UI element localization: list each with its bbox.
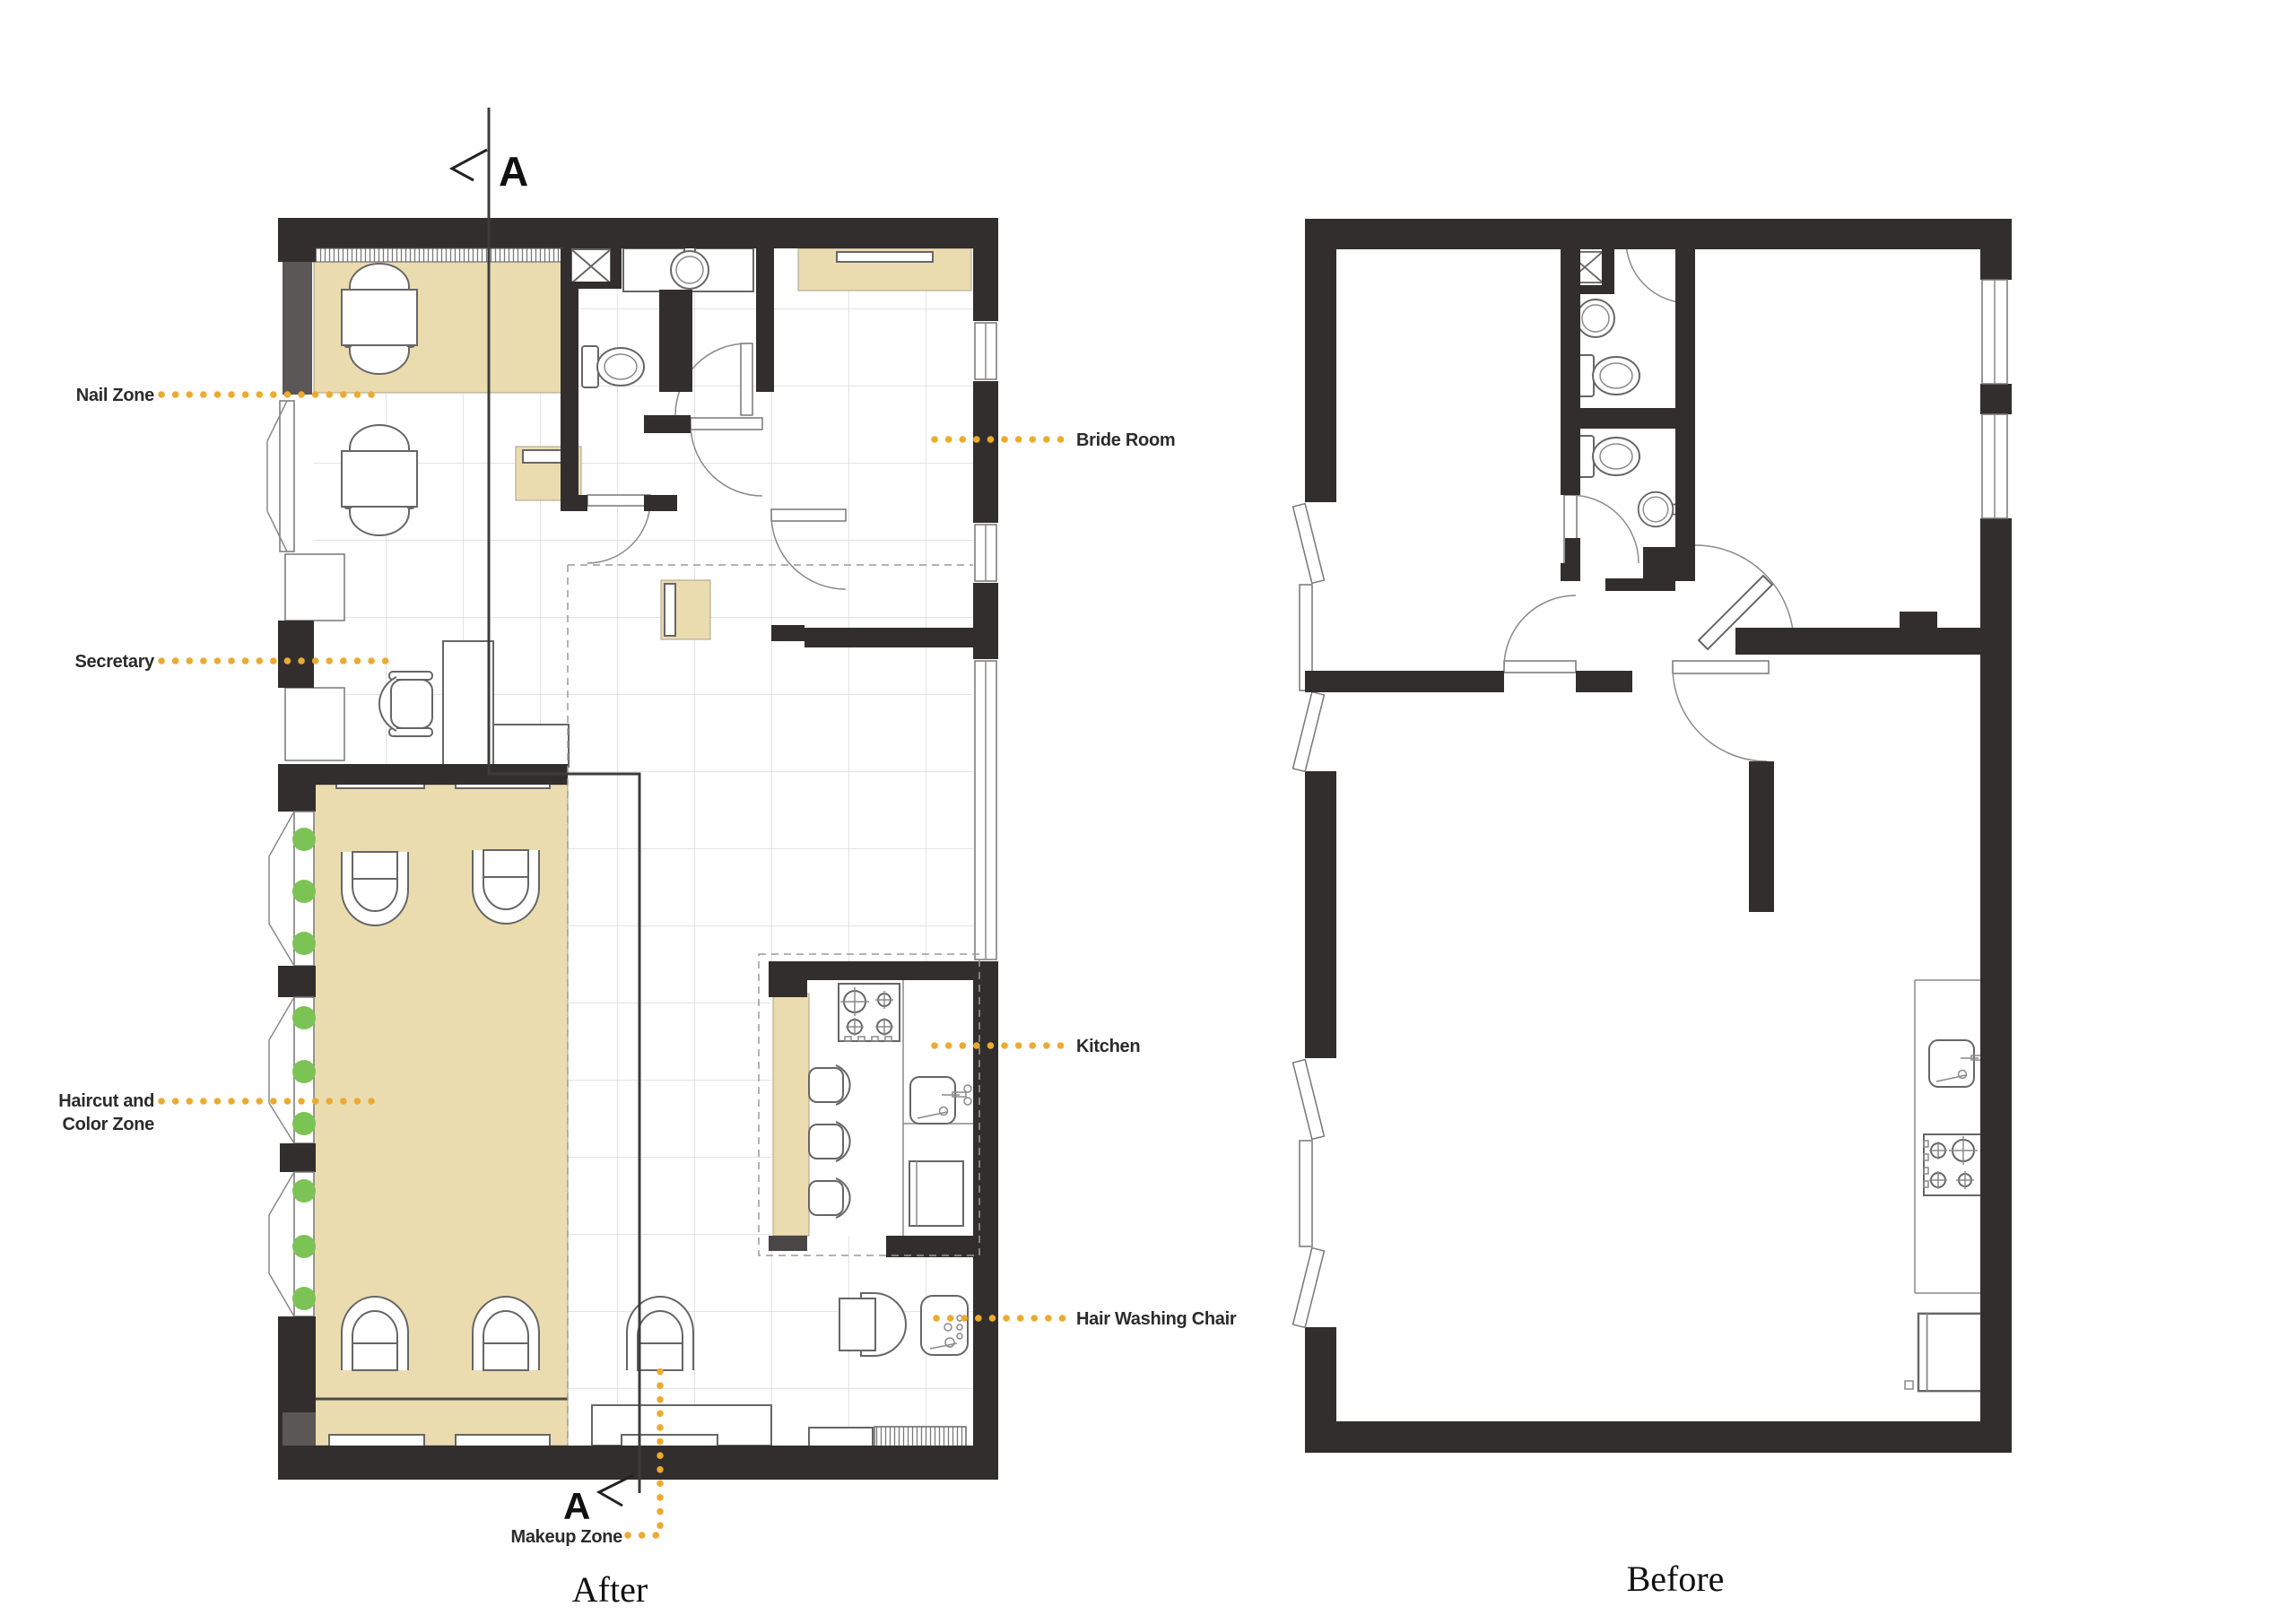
hair-washing-chair — [839, 1293, 906, 1356]
plant-icon — [292, 932, 316, 955]
label-hair-washing-chair: Hair Washing Chair — [1076, 1309, 1237, 1329]
toilet-icon — [1578, 436, 1639, 477]
bench-hatched — [874, 1427, 966, 1448]
plant-icon — [292, 828, 316, 851]
plant-icon — [292, 880, 316, 903]
stove-icon — [839, 984, 900, 1041]
waiting-benches — [809, 1427, 966, 1448]
label-bride-room: Bride Room — [1076, 430, 1175, 450]
bar-chair — [809, 1178, 850, 1218]
floor-plan-canvas: A A Nail Zone Secretary Haircut and Colo… — [0, 0, 2296, 1624]
section-arrow-top — [452, 150, 487, 180]
bar-chair — [809, 1065, 850, 1105]
label-makeup-zone: Makeup Zone — [511, 1527, 623, 1547]
window-sill-hatch — [305, 248, 563, 262]
label-nail-zone: Nail Zone — [76, 386, 154, 405]
after-plan: A A Nail Zone Secretary Haircut and Colo… — [58, 108, 1237, 1610]
after-kitchen — [771, 980, 973, 1236]
nail-table — [342, 451, 417, 507]
plant-icon — [292, 1060, 316, 1083]
styling-chair — [473, 850, 539, 924]
wall-cabinet — [285, 554, 344, 621]
section-arrow-bottom — [599, 1475, 633, 1506]
door-leaf — [691, 418, 762, 430]
bay-window-outline — [269, 812, 294, 1316]
fridge-icon — [909, 1161, 963, 1226]
before-caption: Before — [1627, 1559, 1725, 1599]
plant-icon — [292, 1179, 316, 1203]
bar-chair — [809, 1122, 850, 1161]
wall-cabinet — [285, 688, 344, 760]
door-leaf — [771, 509, 846, 521]
bay-window — [1293, 504, 1325, 772]
mirror-counter — [329, 1435, 424, 1447]
before-plan: Before — [1293, 219, 2012, 1599]
toilet-icon — [582, 346, 644, 387]
bench — [809, 1428, 873, 1446]
kitchen-bar-counter — [773, 994, 809, 1236]
mirror-counter — [456, 1435, 550, 1447]
section-marker-top: A — [499, 148, 528, 195]
door-leaf — [1504, 661, 1576, 673]
door-leaf — [1673, 661, 1769, 673]
wc-door-leaf — [587, 495, 650, 506]
section-marker-bottom: A — [563, 1485, 590, 1527]
plant-icon — [292, 1287, 316, 1310]
after-caption: After — [572, 1569, 648, 1610]
plant-icon — [292, 1006, 316, 1029]
plant-icon — [292, 1235, 316, 1258]
bay-window — [1293, 1060, 1325, 1328]
styling-chair — [473, 1297, 539, 1370]
nail-table — [342, 290, 417, 345]
makeup-chair — [627, 1297, 693, 1370]
shaft-icon — [571, 249, 611, 283]
secretary-desk-return — [493, 725, 569, 767]
label-haircut-line1: Haircut and — [58, 1091, 154, 1111]
styling-chair — [342, 852, 408, 925]
page: A A Nail Zone Secretary Haircut and Colo… — [0, 0, 2296, 1624]
plant-icon — [292, 1112, 316, 1135]
label-haircut-line2: Color Zone — [62, 1115, 154, 1134]
styling-chair — [342, 1297, 408, 1370]
label-secretary: Secretary — [75, 652, 156, 672]
washing-basin — [921, 1296, 968, 1355]
stove-icon — [1924, 1134, 1981, 1195]
door-leaf — [741, 343, 752, 415]
toilet-icon — [1578, 355, 1639, 396]
secretary-desk — [443, 641, 493, 767]
fridge-icon — [1918, 1314, 1983, 1391]
label-kitchen: Kitchen — [1076, 1037, 1140, 1056]
